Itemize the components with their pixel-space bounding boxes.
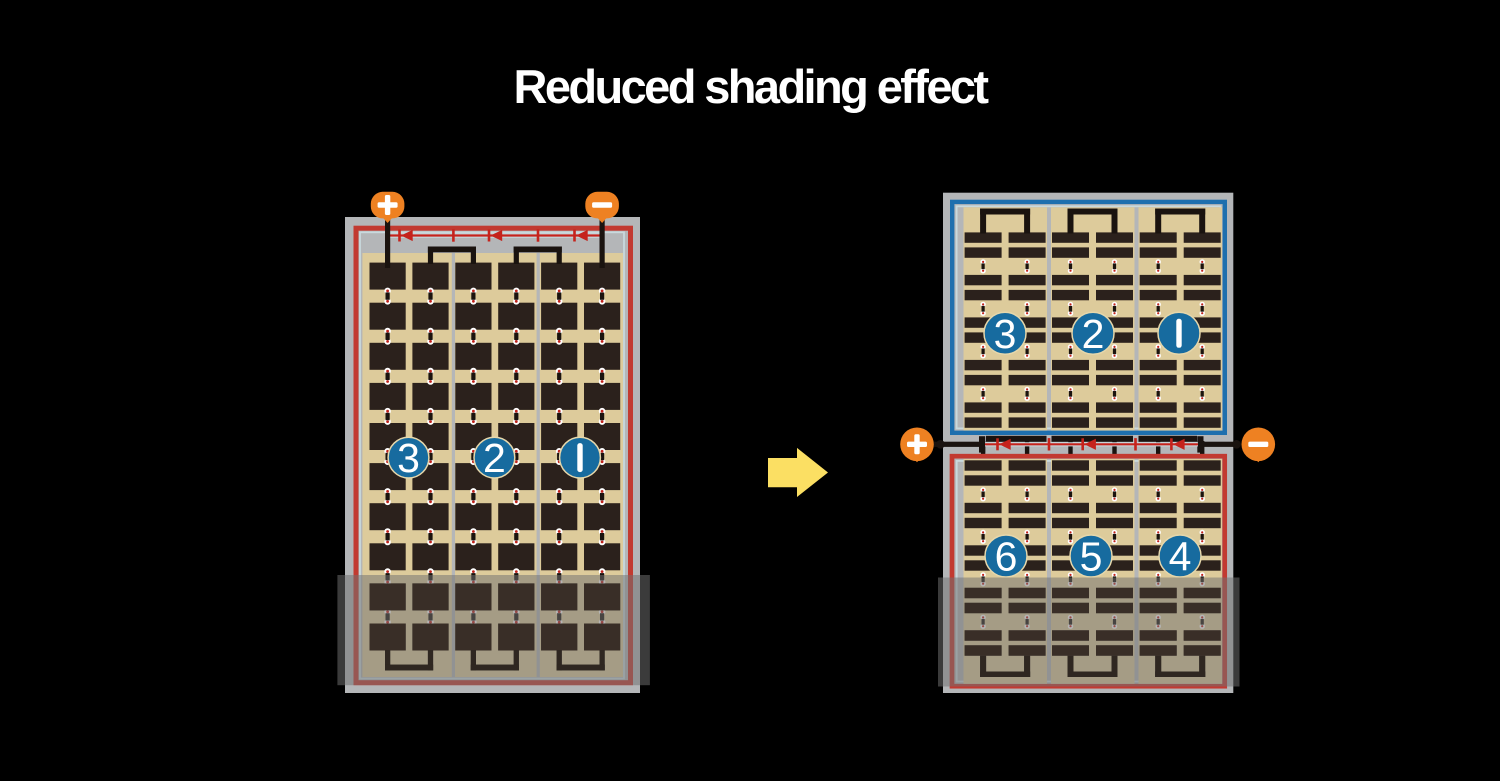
svg-text:Reduced shading effect: Reduced shading effect [514, 60, 990, 113]
svg-text:5: 5 [1080, 534, 1103, 580]
svg-text:3: 3 [994, 311, 1017, 357]
svg-text:2: 2 [483, 435, 506, 481]
svg-text:3: 3 [397, 435, 420, 481]
svg-text:2: 2 [1082, 311, 1105, 357]
svg-text:6: 6 [995, 534, 1018, 580]
svg-text:4: 4 [1169, 534, 1192, 580]
